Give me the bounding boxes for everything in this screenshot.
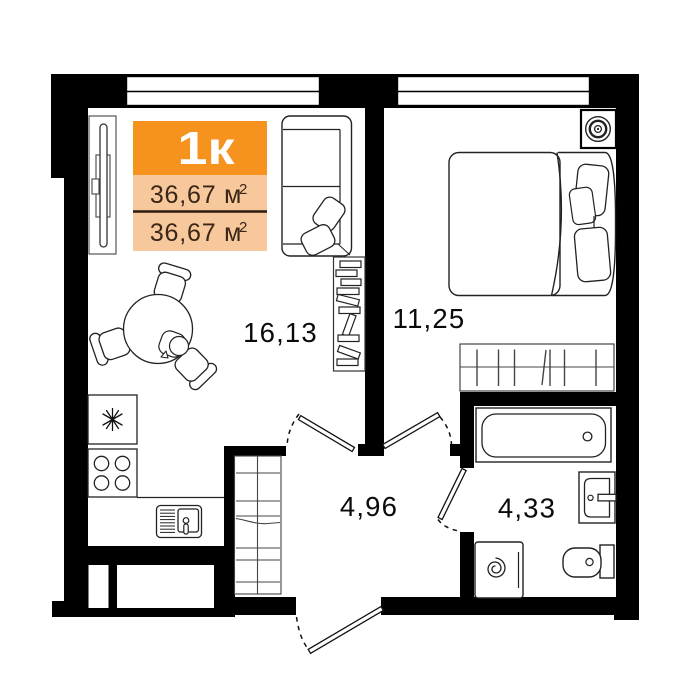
svg-text:36,67 м: 36,67 м	[150, 219, 242, 247]
svg-text:11,25: 11,25	[393, 303, 466, 334]
svg-text:4,96: 4,96	[340, 491, 398, 522]
svg-text:2: 2	[239, 181, 247, 198]
svg-text:1к: 1к	[178, 122, 236, 174]
svg-text:16,13: 16,13	[243, 317, 318, 348]
svg-text:36,67 м: 36,67 м	[150, 181, 242, 209]
svg-text:2: 2	[239, 219, 247, 236]
svg-text:4,33: 4,33	[498, 493, 556, 524]
